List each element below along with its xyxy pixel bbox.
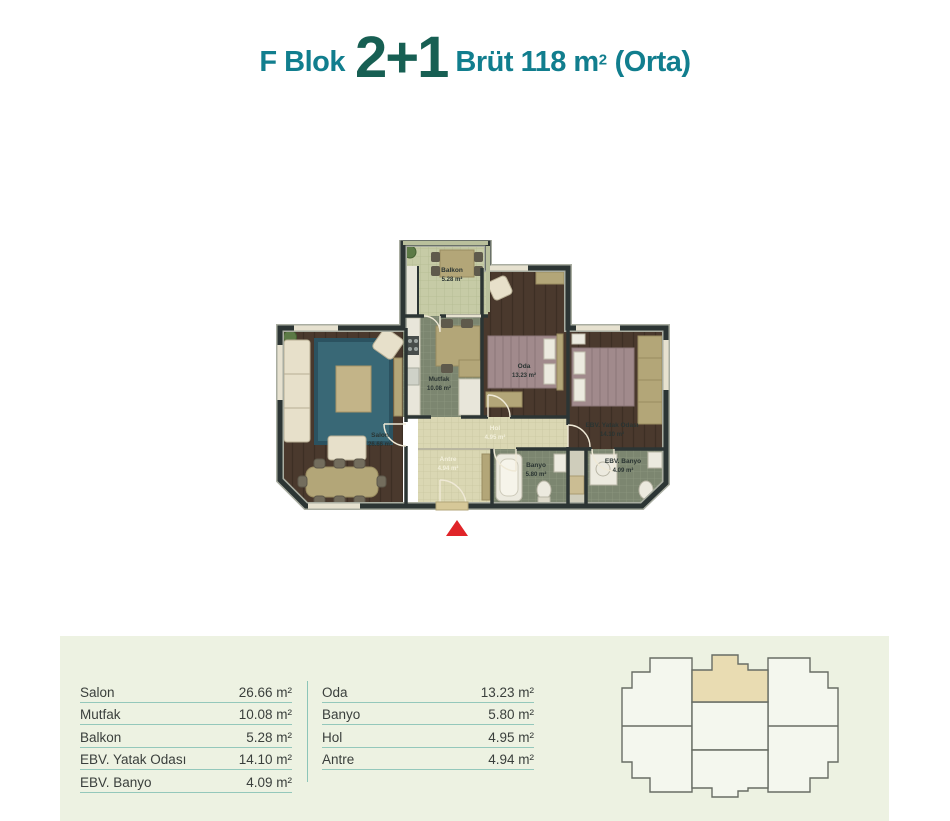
area-table-left: Salon26.66 m² Mutfak10.08 m² Balkon5.28 … [80,680,292,793]
row-label: Salon [80,683,115,702]
table-row: Oda13.23 m² [322,680,534,703]
ebv-pillow-2 [574,379,585,401]
row-value: 4.94 m² [488,750,534,769]
row-value: 13.23 m² [481,683,534,702]
row-label: Banyo [322,705,360,724]
bath-sink [554,454,566,472]
stove [406,336,419,355]
unit-bottom-middle [692,750,768,797]
page-title: F Blok2+1Brüt 118 m2 (Orta) [0,24,950,91]
row-value: 14.10 m² [239,750,292,769]
label-hol: Hol [490,425,501,432]
label-salon-area: 26.66 m² [368,441,392,448]
dining-table [306,467,378,497]
unit-highlighted [692,655,768,702]
label-antre: Antre [440,456,457,463]
row-label: EBV. Banyo [80,773,152,792]
oda-pillow-2 [544,364,555,384]
title-variant-text: (Orta) [615,46,691,78]
kitchen-counter-2 [459,379,481,415]
loveseat [328,436,366,460]
label-ebv-banyo-area: 4.09 m² [613,467,634,474]
toilet [537,481,551,499]
table-divider [307,681,308,782]
label-oda-area: 13.23 m² [512,372,536,379]
label-ebv-banyo: EBV. Banyo [605,458,641,465]
row-label: Hol [322,728,342,747]
kitchen-cabinet [459,360,481,377]
label-antre-area: 4.94 m² [438,465,459,472]
table-row: Mutfak10.08 m² [80,703,292,726]
row-label: EBV. Yatak Odası [80,750,186,769]
table-row: Balkon5.28 m² [80,725,292,748]
label-balkon-area: 5.28 m² [442,276,463,283]
table-row: Hol4.95 m² [322,725,534,748]
ebv-nightstand [572,334,585,344]
oda-headboard [557,334,563,390]
row-value: 5.80 m² [488,705,534,724]
table-row: Salon26.66 m² [80,680,292,703]
title-unit-type: 2+1 [355,25,447,90]
entrance-marker-icon [446,520,468,536]
table-row: Banyo5.80 m² [322,703,534,726]
ebv-pillow [574,352,585,374]
floor-plan: Balkon 5.28 m² Mutfak 10.08 m² Oda 13.23… [276,240,676,540]
row-value: 5.28 m² [246,728,292,747]
key-plan-svg [620,650,842,802]
label-banyo: Banyo [526,462,546,469]
label-oda: Oda [518,363,531,370]
building-key-plan [620,650,842,807]
unit-core [692,702,768,750]
label-ebv-yatak: EBV. Yatak Odası [585,422,638,429]
antre-cabinet [482,454,490,500]
label-salon: Salon [371,432,389,439]
ebv-sink [648,452,662,468]
title-variant [607,46,615,78]
sofa [284,340,310,442]
row-label: Oda [322,683,348,702]
row-label: Balkon [80,728,121,747]
label-banyo-area: 5.80 m² [526,471,547,478]
kitchen-sink [406,368,419,385]
label-mutfak-area: 10.08 m² [427,385,451,392]
oda-pillow [544,339,555,359]
row-value: 10.08 m² [239,705,292,724]
coffee-table [336,366,371,412]
table-row: EBV. Banyo4.09 m² [80,770,292,793]
floor-plan-svg: Balkon 5.28 m² Mutfak 10.08 m² Oda 13.23… [276,240,676,540]
floorplan-page: F Blok2+1Brüt 118 m2 (Orta) [0,0,950,821]
oda-desk [536,272,564,284]
row-value: 26.66 m² [239,683,292,702]
title-block: F Blok [259,46,345,78]
table-row: Antre4.94 m² [322,748,534,771]
label-balkon: Balkon [441,267,463,274]
title-area: Brüt 118 m [455,46,598,78]
floor-hol [418,417,568,449]
row-label: Antre [322,750,354,769]
row-value: 4.09 m² [246,773,292,792]
area-table-right: Oda13.23 m² Banyo5.80 m² Hol4.95 m² Antr… [322,680,534,770]
tv-console [394,358,402,416]
title-area-exponent: 2 [599,52,607,69]
row-value: 4.95 m² [488,728,534,747]
bathtub-inner [500,459,518,496]
unit-right [768,658,838,792]
area-summary-panel: Salon26.66 m² Mutfak10.08 m² Balkon5.28 … [60,636,889,821]
label-mutfak: Mutfak [429,376,450,383]
unit-left [622,658,692,792]
label-hol-area: 4.95 m² [485,434,506,441]
entrance-threshold [436,502,468,510]
table-row: EBV. Yatak Odası14.10 m² [80,748,292,771]
oda-dresser [486,392,522,407]
label-ebv-yatak-area: 14.10 m² [600,431,624,438]
row-label: Mutfak [80,705,121,724]
shaft-cabinet [569,476,584,494]
